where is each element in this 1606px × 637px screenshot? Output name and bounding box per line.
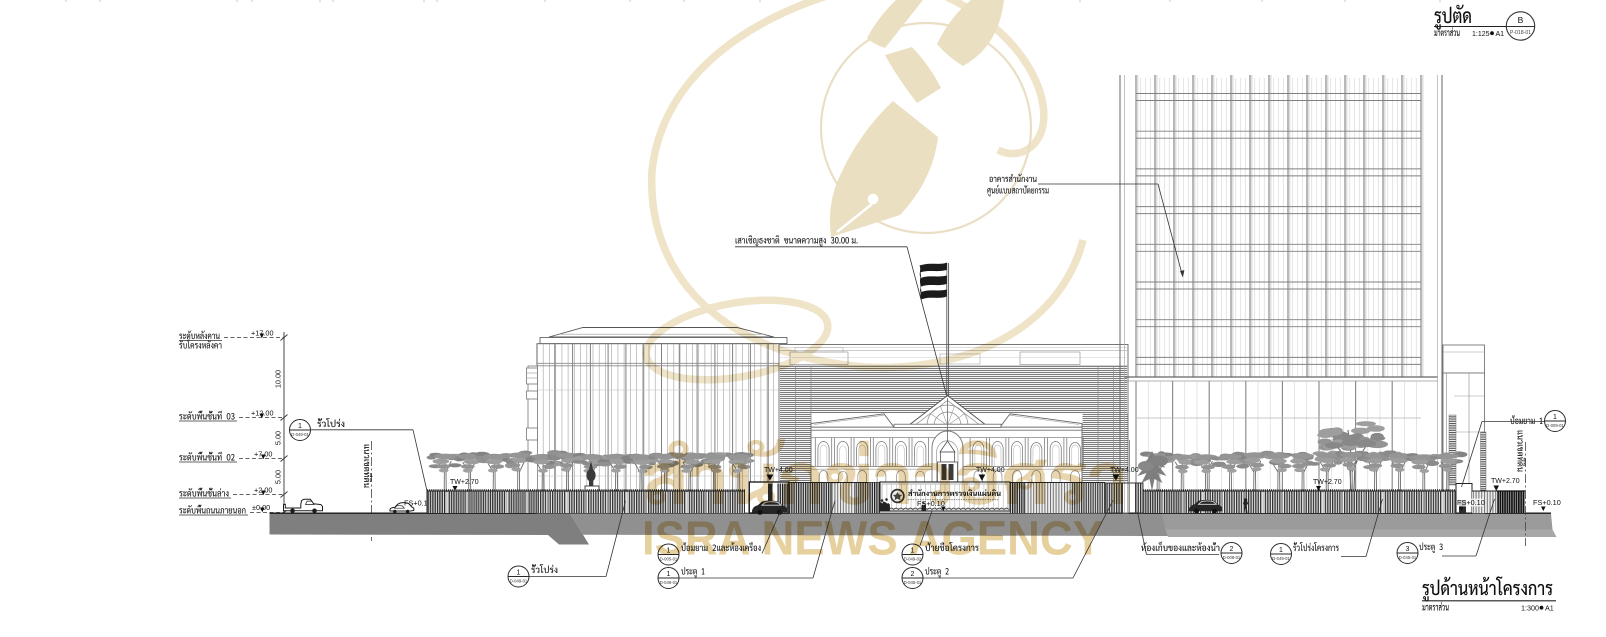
- svg-text:5.00: 5.00: [274, 431, 283, 445]
- svg-text:TW+2.70: TW+2.70: [1313, 479, 1342, 486]
- svg-text:D-045-01: D-045-01: [904, 580, 922, 585]
- svg-text:1:125: 1:125: [1472, 31, 1490, 38]
- svg-text:1: 1: [1279, 547, 1283, 554]
- svg-text:2: 2: [1230, 546, 1234, 553]
- svg-text:1: 1: [667, 571, 671, 578]
- svg-text:2: 2: [911, 571, 915, 578]
- svg-text:D-049-01: D-049-01: [660, 580, 678, 585]
- svg-text:3: 3: [1406, 546, 1410, 553]
- svg-text:P-018-01: P-018-01: [1510, 30, 1531, 36]
- svg-text:TW+2.70: TW+2.70: [1491, 478, 1520, 485]
- svg-text:1: 1: [298, 423, 302, 430]
- svg-text:D-008-01: D-008-01: [1223, 555, 1241, 560]
- svg-text:D-049-01: D-049-01: [1272, 556, 1290, 561]
- svg-text:FS+0.10: FS+0.10: [1533, 498, 1561, 507]
- svg-text:5.00: 5.00: [274, 470, 283, 484]
- svg-text:D-009-01: D-009-01: [1546, 423, 1564, 428]
- svg-text:D-045-01: D-045-01: [1399, 555, 1417, 560]
- svg-text:1: 1: [1553, 414, 1557, 421]
- svg-text:10.00: 10.00: [274, 370, 283, 388]
- svg-text:A1: A1: [1496, 31, 1505, 38]
- svg-text:B: B: [1518, 15, 1524, 25]
- svg-text:A1: A1: [1545, 604, 1554, 613]
- svg-text:D-049-01: D-049-01: [291, 432, 309, 437]
- svg-text:1:300: 1:300: [1521, 604, 1539, 613]
- svg-text:FS+0.10: FS+0.10: [1457, 498, 1485, 507]
- svg-text:D-049-01: D-049-01: [510, 579, 528, 584]
- svg-text:ISRA NEWS AGENCY: ISRA NEWS AGENCY: [642, 513, 1103, 566]
- svg-text:TW+2.70: TW+2.70: [450, 479, 479, 486]
- svg-text:1: 1: [517, 569, 521, 576]
